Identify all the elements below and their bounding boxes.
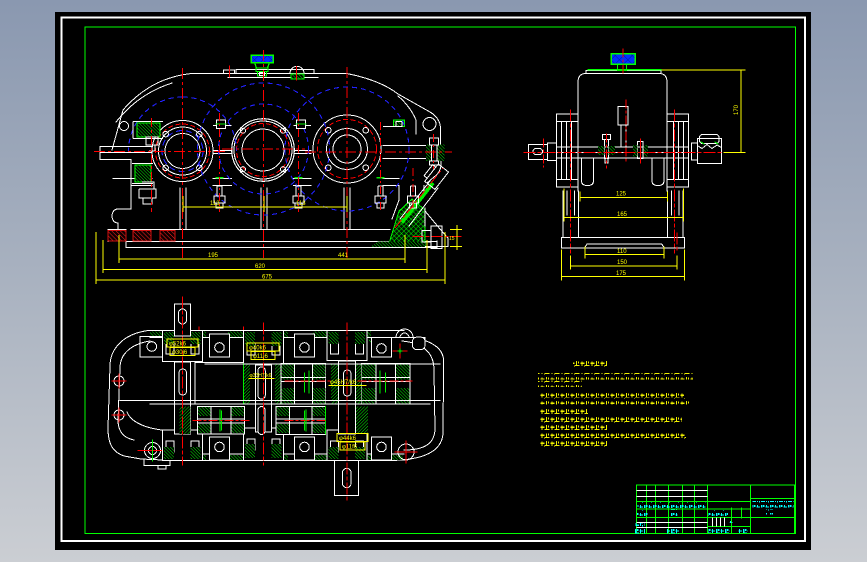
svg-text:620: 620 [255,264,266,270]
svg-text:110: 110 [617,249,627,255]
svg-text:15: 15 [449,236,455,242]
svg-text:113: 113 [296,201,306,207]
svg-text:φ11f6: φ11f6 [342,445,358,451]
svg-text:φ44k6: φ44k6 [339,436,357,442]
svg-text:φ30j6: φ30j6 [172,350,188,356]
svg-text:φ11j6: φ11j6 [253,354,268,360]
svg-text:195: 195 [208,253,219,259]
svg-text:170: 170 [734,104,740,115]
svg-text:150: 150 [617,260,628,266]
svg-text:113: 113 [210,201,220,207]
svg-text:φ52k6: φ52k6 [169,342,187,348]
svg-text:675: 675 [262,275,273,281]
svg-text:175: 175 [616,271,627,277]
svg-text:125: 125 [616,192,627,198]
svg-text:φ40k6: φ40k6 [249,346,267,352]
svg-text:165: 165 [617,212,628,218]
svg-text:441: 441 [338,253,349,259]
